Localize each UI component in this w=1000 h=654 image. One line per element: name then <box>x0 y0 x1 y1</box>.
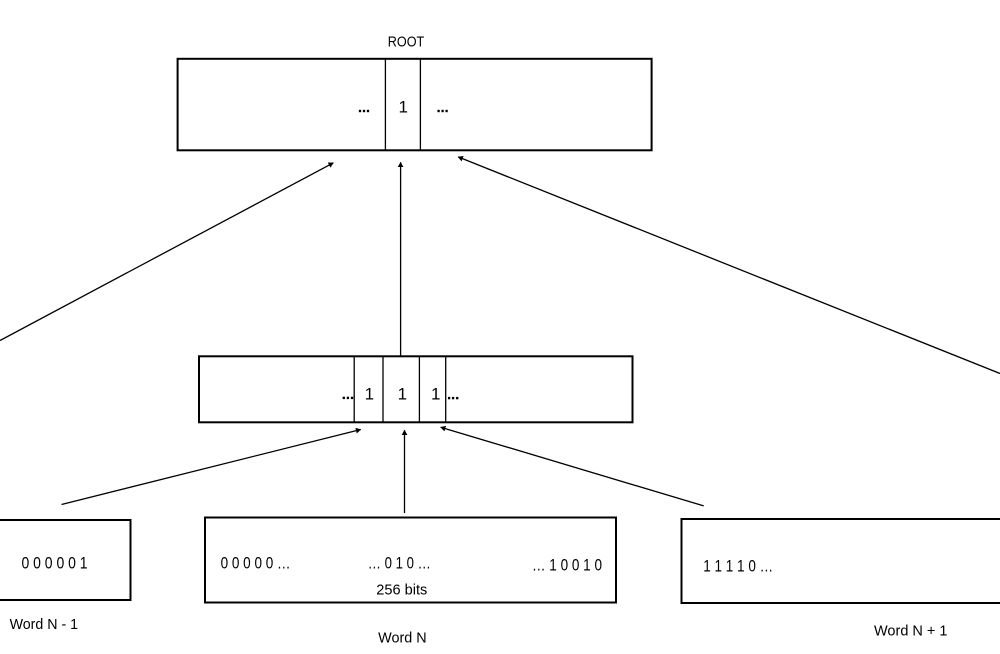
svg-text:1: 1 <box>365 385 374 404</box>
svg-text:… 1 0 0 1 0: … 1 0 0 1 0 <box>532 557 602 575</box>
svg-text:Word N: Word N <box>378 630 427 647</box>
svg-text:0 0 0 0 0 …: 0 0 0 0 0 … <box>221 555 291 573</box>
svg-text:256 bits: 256 bits <box>376 582 427 599</box>
svg-text:Word N + 1: Word N + 1 <box>874 622 948 639</box>
svg-text:1 1 1 1 0 …: 1 1 1 1 0 … <box>703 558 773 576</box>
svg-text:1: 1 <box>431 385 440 404</box>
svg-text:Word N - 1: Word N - 1 <box>10 616 79 633</box>
svg-text:0 0 0 0 0 1: 0 0 0 0 0 1 <box>22 554 88 572</box>
svg-text:… 0 1 0 …: … 0 1 0 … <box>368 555 431 573</box>
svg-text:ROOT: ROOT <box>388 34 425 50</box>
svg-text:1: 1 <box>398 385 407 404</box>
svg-text:1: 1 <box>398 98 407 117</box>
